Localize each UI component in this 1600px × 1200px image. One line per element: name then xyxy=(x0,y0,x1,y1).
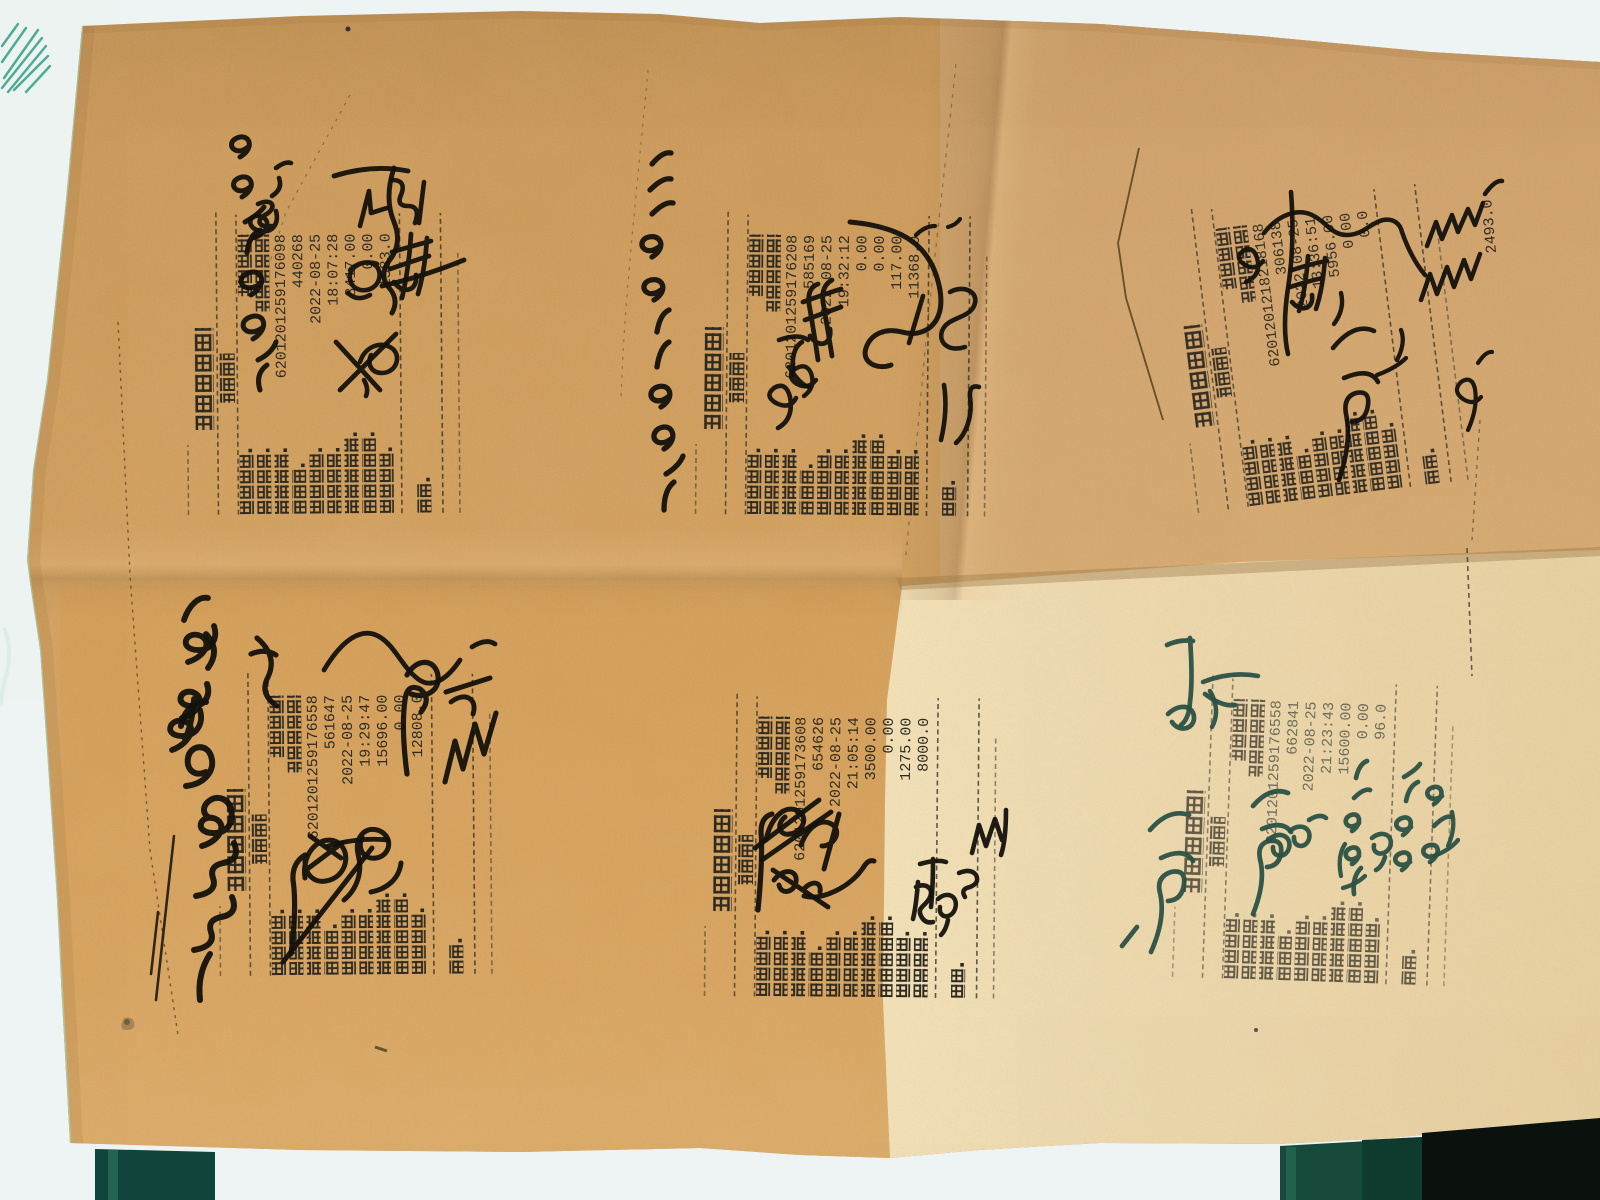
svg-text:1275.00: 1275.00 xyxy=(898,718,916,781)
svg-text:0.00: 0.00 xyxy=(854,235,871,271)
svg-text:3500.00: 3500.00 xyxy=(863,717,881,780)
svg-text:21:05:14: 21:05:14 xyxy=(845,717,863,789)
svg-text:2022-08-25: 2022-08-25 xyxy=(340,695,358,785)
svg-text:6201201259176098: 6201201259176098 xyxy=(273,234,291,378)
svg-text:18:07:28: 18:07:28 xyxy=(325,234,343,306)
svg-text:2022-08-25: 2022-08-25 xyxy=(1301,701,1321,792)
svg-text:117.00: 117.00 xyxy=(889,236,906,290)
svg-text:8000.0: 8000.0 xyxy=(915,718,932,772)
svg-text:0.00: 0.00 xyxy=(872,235,889,271)
svg-text:2022-08-25: 2022-08-25 xyxy=(308,234,326,324)
svg-text:15600.00: 15600.00 xyxy=(1336,702,1356,775)
svg-text:2022-08-25: 2022-08-25 xyxy=(828,717,846,807)
svg-text:662841: 662841 xyxy=(1284,701,1303,756)
svg-text:96.0: 96.0 xyxy=(1372,704,1390,741)
svg-text:6201201259176558: 6201201259176558 xyxy=(305,695,323,839)
svg-text:19:29:47: 19:29:47 xyxy=(357,695,375,767)
svg-text:19:32:12: 19:32:12 xyxy=(836,235,854,307)
svg-text:21:23:43: 21:23:43 xyxy=(1319,702,1339,775)
svg-text:654626: 654626 xyxy=(810,717,827,771)
svg-text:0.00: 0.00 xyxy=(1355,703,1373,740)
svg-text:585169: 585169 xyxy=(801,235,818,289)
svg-text:561647: 561647 xyxy=(322,695,339,749)
svg-text:440268: 440268 xyxy=(290,234,307,288)
svg-text:0.00: 0.00 xyxy=(881,717,898,753)
svg-text:15696.00: 15696.00 xyxy=(375,695,393,767)
